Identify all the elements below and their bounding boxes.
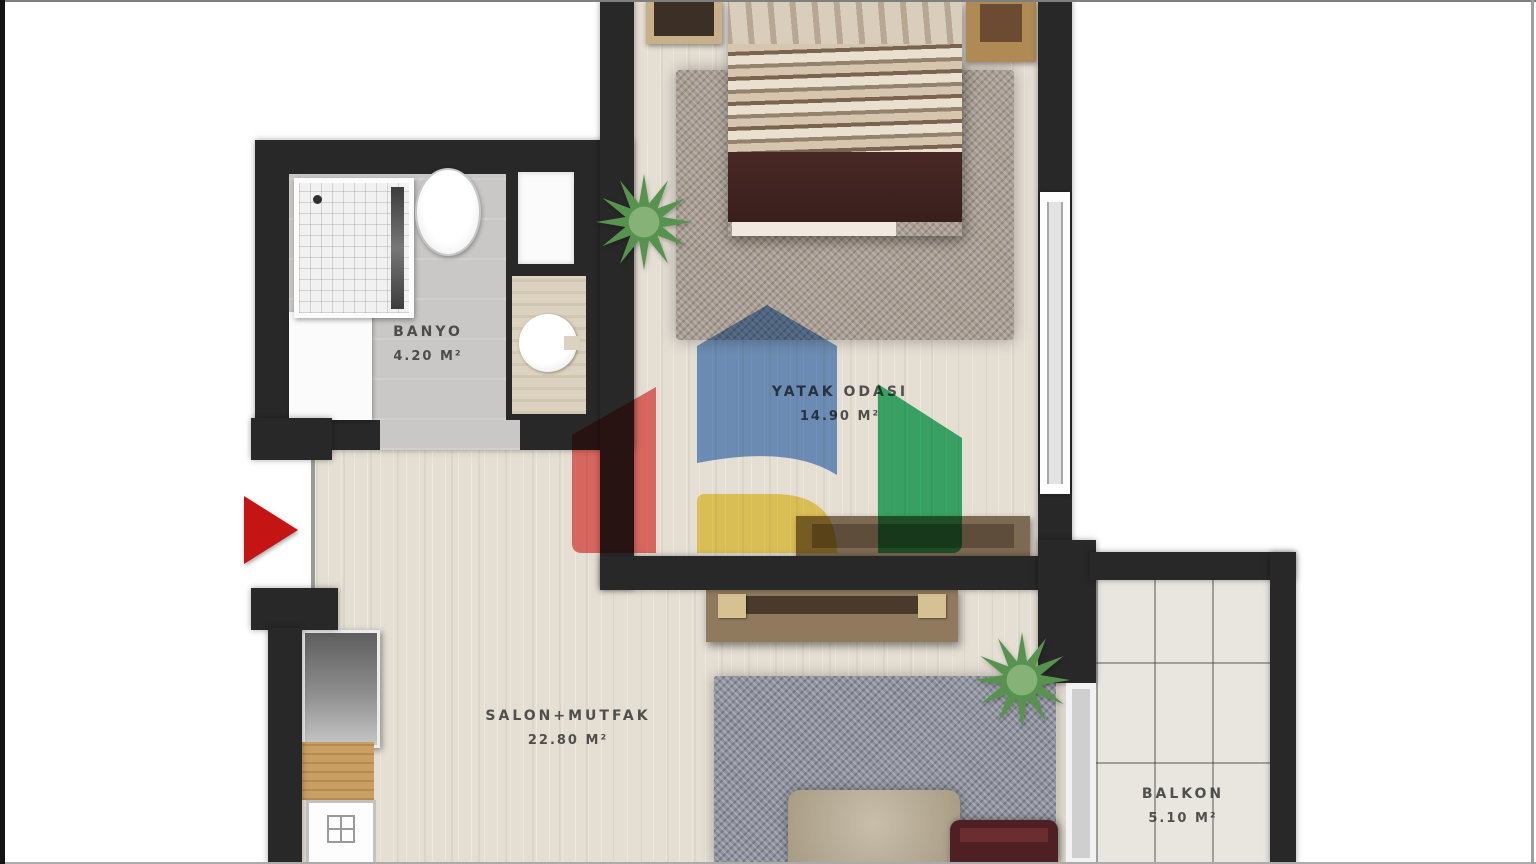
bed-blanket (728, 152, 962, 222)
armchair (950, 820, 1058, 864)
kitchen-counter (302, 742, 374, 800)
nightstand-left (646, 0, 722, 44)
floor-plan-canvas: BANYO 4.20 M² YATAK ODASI 14.90 M² SALON… (0, 0, 1536, 864)
frame-left-bar (0, 0, 5, 864)
room-name: BALKON (1043, 786, 1323, 802)
bedroom-window (1040, 192, 1070, 494)
stove (306, 800, 376, 864)
fridge (302, 630, 380, 748)
room-name: SALON+MUTFAK (428, 708, 708, 724)
nightstand-right-top (980, 4, 1022, 42)
room-name: BANYO (288, 324, 568, 340)
balcony-door (1066, 683, 1096, 864)
bathroom-door-opening (380, 420, 520, 450)
entrance-arrow-icon (244, 496, 298, 564)
nightstand-left-top (654, 0, 714, 36)
watermark-logo (568, 302, 966, 558)
entry-wall-top (251, 418, 332, 460)
bathroom-closet (518, 172, 574, 264)
shower-glass-icon (391, 187, 404, 309)
bed-duvet (728, 44, 962, 154)
plant-icon (974, 632, 1070, 728)
frame-top-line (0, 0, 1536, 2)
stove-grid-icon (327, 815, 355, 843)
salon-left-wall (268, 628, 302, 864)
room-label-salon-mutfak: SALON+MUTFAK 22.80 M² (428, 708, 708, 748)
shower-head-icon (313, 195, 322, 204)
room-area: 4.20 M² (288, 349, 568, 364)
logo-blue-shape (697, 305, 837, 475)
logo-red-shape (572, 387, 656, 553)
entry-wall-bottom (251, 588, 338, 630)
sideboard-knob-right (918, 594, 946, 618)
armchair-cushion (960, 828, 1048, 842)
room-label-balkon: BALKON 5.10 M² (1043, 786, 1323, 826)
bed (728, 0, 962, 236)
balcony-top-wall (1090, 552, 1296, 580)
toilet-icon (415, 168, 481, 256)
nightstand-right (966, 0, 1036, 62)
shower-icon (294, 178, 414, 318)
sideboard-knob-left (718, 594, 746, 618)
room-area: 22.80 M² (428, 733, 708, 748)
logo-green-shape (878, 384, 962, 553)
logo-yellow-shape (697, 494, 837, 553)
entry-door-frame (311, 458, 315, 588)
plant-icon (596, 174, 692, 270)
sideboard-top (740, 596, 924, 614)
balcony-door-glass (1072, 689, 1090, 858)
room-area: 5.10 M² (1043, 811, 1323, 826)
room-label-banyo: BANYO 4.20 M² (288, 324, 568, 364)
window-glass (1047, 202, 1063, 484)
bedroom-bottom-wall (600, 556, 1072, 590)
frame-right-line (1531, 0, 1534, 864)
coffee-table (788, 790, 960, 864)
bed-sheet-fold (732, 222, 896, 236)
sideboard (706, 588, 958, 642)
